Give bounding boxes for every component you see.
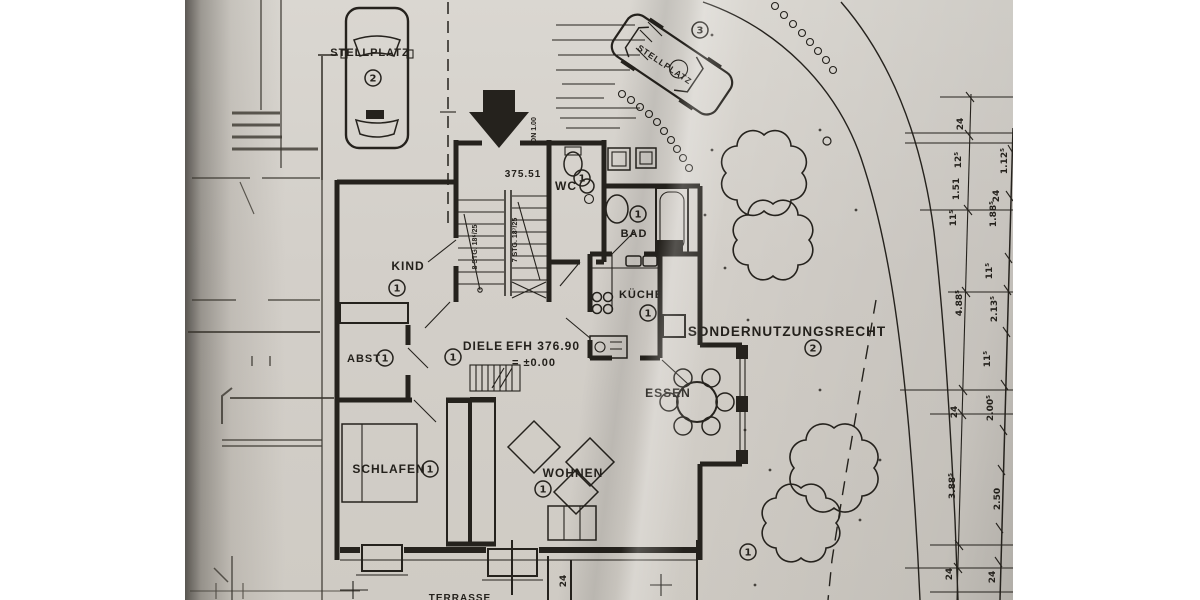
toilet (564, 152, 582, 176)
reference-number: 1 (427, 465, 434, 476)
label-kueche: KÜCHE (619, 288, 663, 301)
label-kind: KIND (391, 259, 424, 273)
scatter-dots (699, 34, 882, 587)
dimension-label: 4.88⁵ (955, 290, 965, 316)
dimension-label: 24 (992, 190, 1002, 203)
sofa (548, 506, 596, 540)
chimney-hatched (471, 398, 495, 544)
label-schlafen: SCHLAFEN (352, 462, 425, 476)
label-stair-right: 7 STG. 18⁷/25 (512, 218, 519, 263)
label-door-width: DN 1.00 (531, 117, 538, 143)
reference-number: 1 (635, 210, 642, 221)
dimension-label: 12⁵ (954, 152, 964, 169)
label-terrasse: TERRASSE (429, 593, 491, 600)
reference-number: 1 (579, 174, 586, 185)
car-top-view (346, 8, 408, 148)
scanned-floor-plan: { "labels": { "stellplatz_top": "STELLPL… (0, 0, 1200, 600)
dimension-label: 11⁵ (983, 351, 993, 368)
scan-margin-left (0, 0, 185, 600)
stove-burner (593, 293, 602, 302)
label-abst: ABST (347, 353, 381, 365)
dimension-label: 2.13⁵ (990, 296, 1000, 322)
boundary-chain (619, 3, 837, 172)
dimension-label: 1.12⁵ (1000, 148, 1010, 174)
entrance-arrow-icon (469, 90, 529, 148)
car-angled-top-view: STELLPLATZ (605, 8, 738, 122)
reference-number: 1 (450, 353, 457, 364)
dimension-label: 24 (956, 118, 966, 131)
reference-number: 1 (645, 309, 652, 320)
label-wohnen: WOHNEN (543, 466, 604, 480)
reference-number: 1 (745, 548, 752, 559)
label-sondernutzungsrecht: SONDERNUTZUNGSRECHT (688, 324, 886, 339)
scan-margin-right (1013, 0, 1200, 600)
reference-number: 1 (382, 354, 389, 365)
dimension-label: 1.88⁵ (989, 201, 999, 227)
reference-number: 2 (810, 344, 817, 355)
label-essen: ESSEN (645, 386, 691, 400)
label-diele-level: EFH 376.90 (506, 339, 580, 353)
label-diele: DIELE (463, 339, 503, 353)
room-labels: STELLPLATZ 375.51 DN 1.00 8 STG. 18⁵/25 … (330, 47, 886, 600)
chimney-hatched (447, 402, 469, 544)
reference-number: 2 (370, 74, 377, 85)
reference-number: 1 (394, 284, 401, 295)
dimension-label: 24 (988, 571, 998, 584)
label-entrance-level: 375.51 (505, 169, 542, 180)
dimension-label: 11⁵ (949, 210, 959, 227)
chimney-hatched (663, 315, 685, 337)
dimension-label: 11⁵ (985, 263, 995, 280)
reference-number: 3 (697, 26, 704, 37)
dimension-label: 2.50 (993, 488, 1003, 510)
label-stellplatz-angled: STELLPLATZ (636, 43, 694, 87)
label-stair-left: 8 STG. 18⁵/25 (472, 224, 479, 269)
dimension-label: 2.00⁵ (986, 395, 996, 421)
dimension-label: 24 (945, 568, 955, 581)
neighbor-unit-lines (188, 0, 360, 600)
window (362, 545, 402, 571)
label-bad: BAD (621, 228, 648, 240)
dimension-label: 3.88⁵ (948, 473, 958, 499)
label-stellplatz-top: STELLPLATZ (330, 47, 409, 59)
dimension-label: 24 (559, 575, 569, 588)
dimension-label: 24 (950, 406, 960, 419)
wall-hatched (340, 303, 408, 323)
kitchen-sink (626, 256, 641, 266)
washbasin (606, 195, 628, 223)
label-diele-zero: = ±0.00 (512, 357, 556, 369)
label-wc: WC (555, 179, 577, 193)
dimension-label: 1.51 (952, 178, 962, 200)
reference-number: 1 (540, 485, 547, 496)
